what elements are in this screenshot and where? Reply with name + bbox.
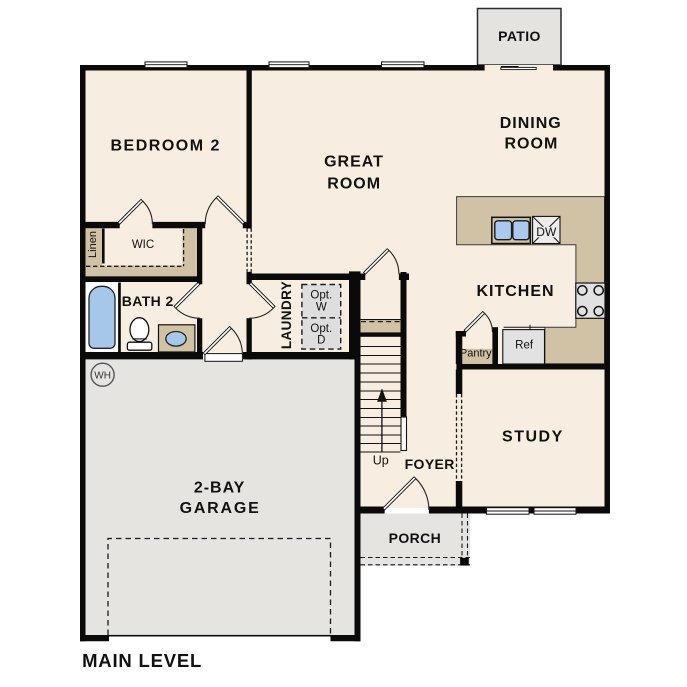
svg-text:Opt.: Opt. — [310, 290, 332, 302]
svg-text:BATH 2: BATH 2 — [122, 293, 174, 309]
svg-text:DW: DW — [536, 225, 557, 239]
svg-text:Linen: Linen — [87, 231, 99, 258]
svg-text:LAUNDRY: LAUNDRY — [279, 281, 294, 349]
svg-text:STUDY: STUDY — [502, 429, 564, 446]
svg-text:2-BAY: 2-BAY — [194, 479, 246, 496]
svg-text:MAIN LEVEL: MAIN LEVEL — [82, 650, 202, 671]
svg-text:WH: WH — [94, 371, 111, 382]
svg-text:ROOM: ROOM — [505, 136, 559, 153]
svg-text:Opt.: Opt. — [310, 323, 332, 335]
svg-text:Ref: Ref — [515, 339, 534, 351]
svg-text:DINING: DINING — [500, 115, 562, 132]
svg-text:W: W — [316, 302, 327, 314]
svg-text:KITCHEN: KITCHEN — [476, 283, 554, 300]
svg-text:FOYER: FOYER — [405, 456, 455, 472]
svg-text:PATIO: PATIO — [498, 28, 541, 44]
svg-text:WIC: WIC — [132, 239, 154, 251]
svg-text:GARAGE: GARAGE — [180, 500, 261, 517]
svg-text:D: D — [317, 335, 325, 347]
svg-text:BEDROOM 2: BEDROOM 2 — [110, 138, 220, 155]
svg-text:ROOM: ROOM — [327, 175, 381, 192]
svg-text:PORCH: PORCH — [389, 530, 442, 546]
svg-text:GREAT: GREAT — [324, 154, 384, 171]
svg-text:Pantry: Pantry — [460, 348, 492, 360]
svg-text:Up: Up — [373, 454, 389, 468]
